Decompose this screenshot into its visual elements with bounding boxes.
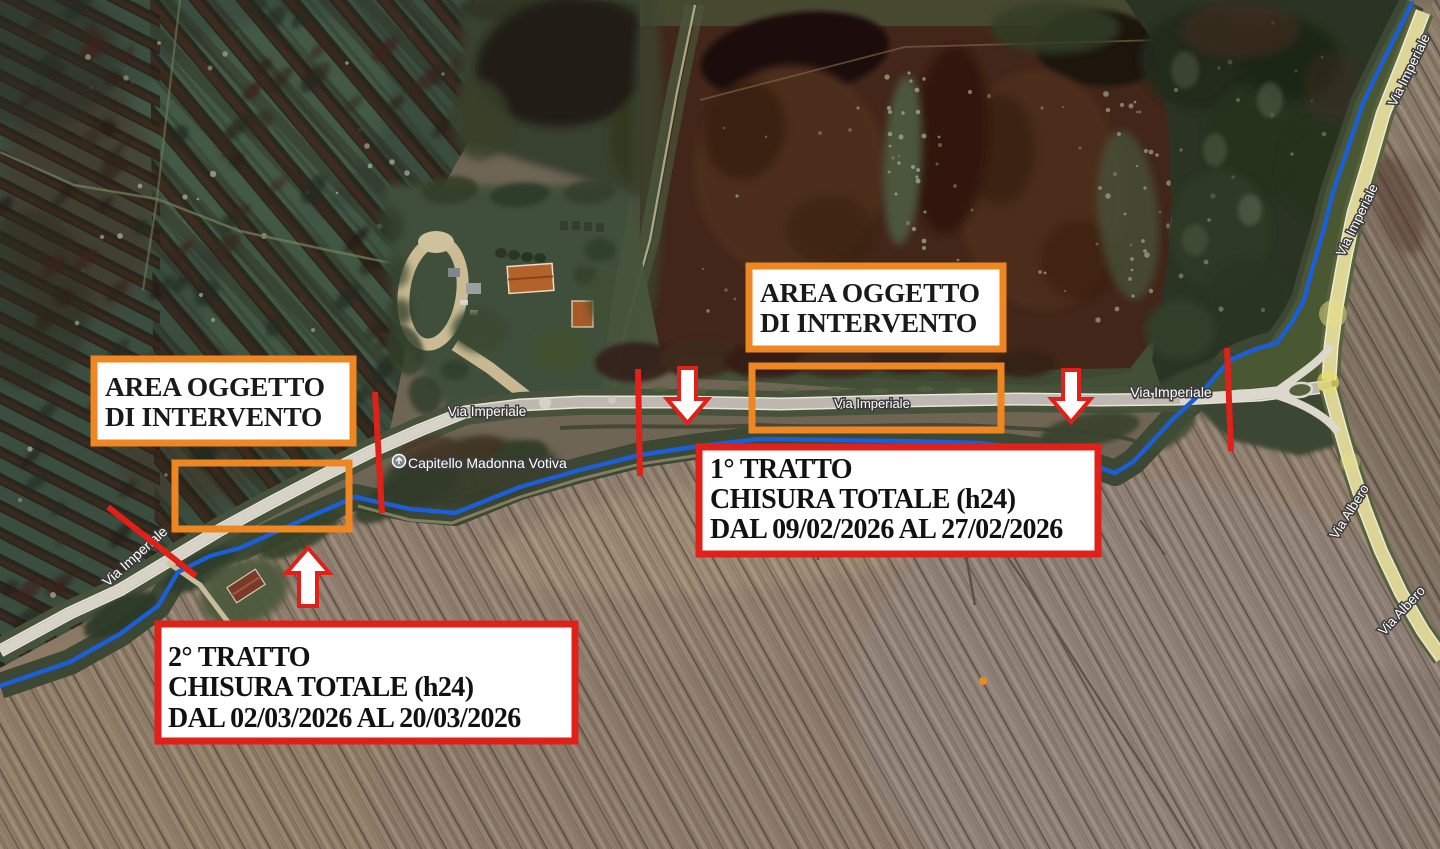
- svg-text:DAL 02/03/2026 AL 20/03/2026: DAL 02/03/2026 AL 20/03/2026: [168, 703, 521, 734]
- svg-text:Capitello Madonna Votiva: Capitello Madonna Votiva: [408, 455, 567, 471]
- svg-text:Via Imperiale: Via Imperiale: [1130, 384, 1212, 400]
- svg-text:DI INTERVENTO: DI INTERVENTO: [760, 307, 977, 338]
- svg-text:Via Imperiale: Via Imperiale: [834, 396, 910, 411]
- svg-text:DAL 09/02/2026 AL 27/02/2026: DAL 09/02/2026 AL 27/02/2026: [710, 514, 1063, 545]
- svg-text:AREA OGGETTO: AREA OGGETTO: [760, 277, 980, 308]
- svg-text:Via Imperiale: Via Imperiale: [448, 404, 527, 419]
- svg-text:DI INTERVENTO: DI INTERVENTO: [105, 401, 322, 432]
- svg-text:1° TRATTO: 1° TRATTO: [710, 454, 852, 485]
- svg-text:CHISURA TOTALE (h24): CHISURA TOTALE (h24): [710, 484, 1016, 515]
- svg-text:2° TRATTO: 2° TRATTO: [168, 642, 310, 673]
- svg-text:CHISURA TOTALE (h24): CHISURA TOTALE (h24): [168, 672, 474, 703]
- svg-text:AREA OGGETTO: AREA OGGETTO: [105, 371, 325, 402]
